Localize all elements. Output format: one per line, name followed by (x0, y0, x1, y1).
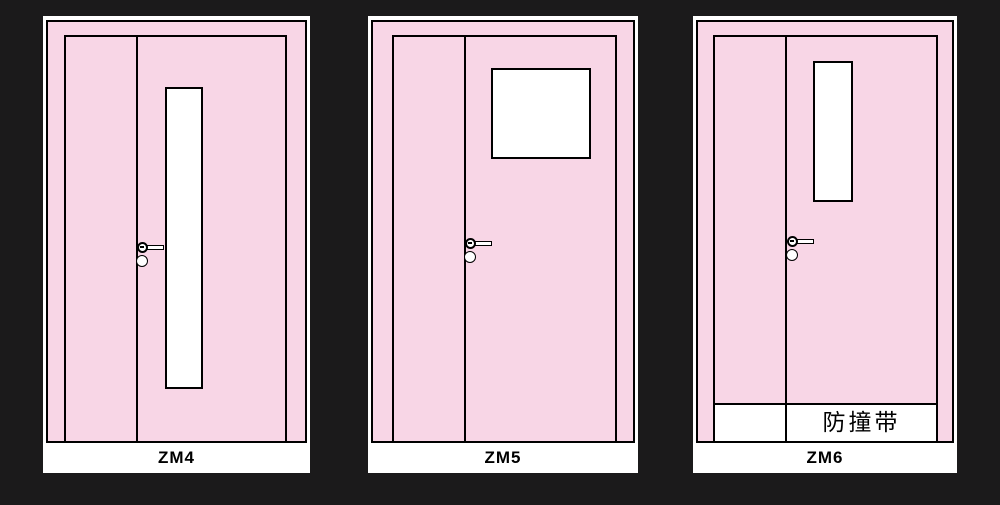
lock-cylinder-icon (464, 251, 476, 263)
door-diagram-canvas: ZM4 ZM5 防撞带 (0, 0, 1000, 505)
door-leaves-outline (392, 35, 617, 441)
door-label-strip: ZM6 (693, 443, 957, 473)
door-figure-zm4: ZM4 (43, 16, 310, 473)
door-frame-face: 防撞带 (696, 20, 954, 443)
vision-panel-window (491, 68, 591, 159)
door-label-strip: ZM5 (368, 443, 638, 473)
lock-cylinder-icon (786, 249, 798, 261)
anti-collision-band-label: 防撞带 (787, 405, 936, 441)
door-figure-zm6: 防撞带 ZM6 (693, 16, 957, 473)
door-label-strip: ZM4 (43, 443, 310, 473)
anti-collision-band: 防撞带 (715, 403, 936, 441)
leaf-divider-line (136, 37, 138, 441)
handle-rosette-icon (137, 242, 148, 253)
vision-panel-window (165, 87, 203, 389)
door-leaves-outline: 防撞带 (713, 35, 938, 441)
door-handle (137, 242, 171, 270)
door-leaves-outline (64, 35, 287, 441)
lock-cylinder-icon (136, 255, 148, 267)
door-frame-face (46, 20, 307, 443)
vision-panel-window (813, 61, 853, 202)
door-figure-zm5: ZM5 (368, 16, 638, 473)
door-label: ZM5 (485, 448, 522, 468)
door-handle (787, 236, 821, 264)
door-label: ZM4 (158, 448, 195, 468)
door-frame-face (371, 20, 635, 443)
handle-rosette-icon (787, 236, 798, 247)
door-label: ZM6 (807, 448, 844, 468)
door-handle (465, 238, 499, 266)
handle-rosette-icon (465, 238, 476, 249)
